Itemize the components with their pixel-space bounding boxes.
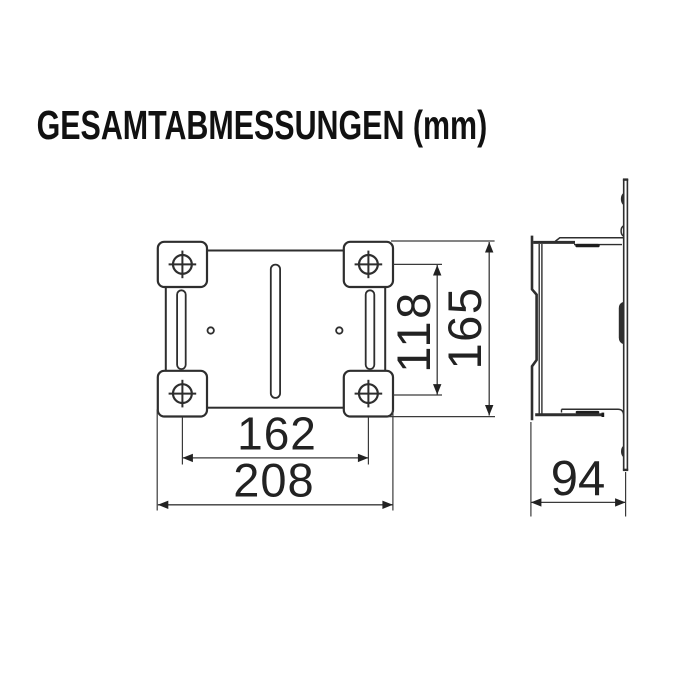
- svg-text:118: 118: [387, 290, 440, 372]
- svg-text:162: 162: [237, 408, 317, 460]
- svg-text:94: 94: [551, 452, 606, 506]
- svg-text:GESAMTABMESSUNGEN (mm): GESAMTABMESSUNGEN (mm): [37, 102, 488, 149]
- svg-text:208: 208: [233, 453, 314, 506]
- svg-text:165: 165: [438, 287, 491, 370]
